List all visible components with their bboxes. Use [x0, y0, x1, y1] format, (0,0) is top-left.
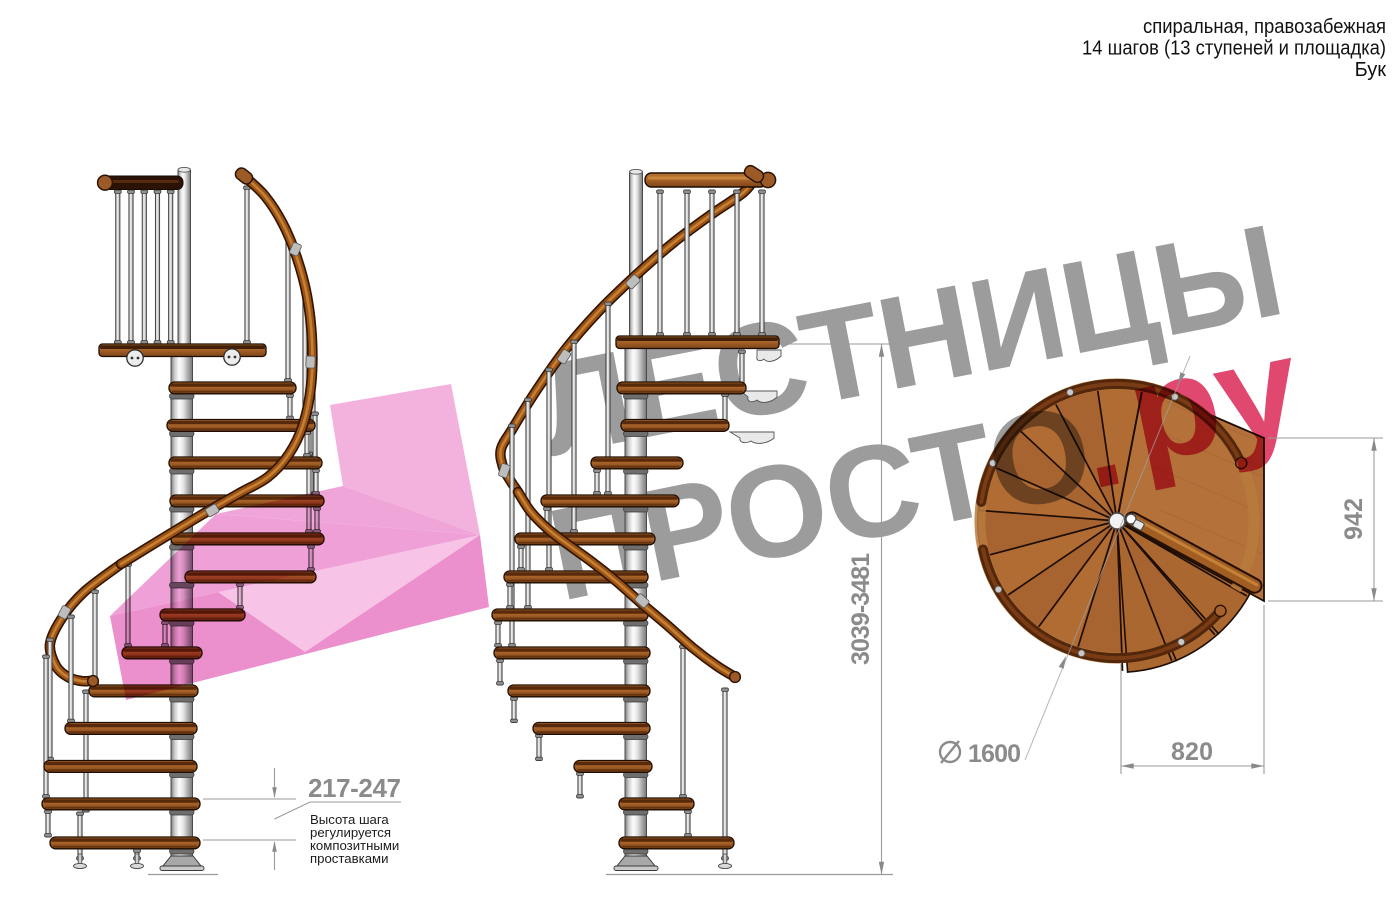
- svg-text:942: 942: [1340, 498, 1368, 540]
- svg-text:14 шагов (13 ступеней и площад: 14 шагов (13 ступеней и площадка): [1082, 38, 1386, 60]
- svg-text:Бук: Бук: [1355, 59, 1387, 81]
- svg-text:3039-3481: 3039-3481: [847, 553, 875, 665]
- svg-text:спиральная, правозабежная: спиральная, правозабежная: [1143, 16, 1386, 38]
- svg-text:проставками: проставками: [310, 851, 388, 866]
- svg-text:217-247: 217-247: [308, 773, 401, 803]
- svg-text:820: 820: [1171, 738, 1213, 766]
- svg-text:1600: 1600: [968, 740, 1021, 768]
- svg-text:ру: ру: [1115, 306, 1313, 494]
